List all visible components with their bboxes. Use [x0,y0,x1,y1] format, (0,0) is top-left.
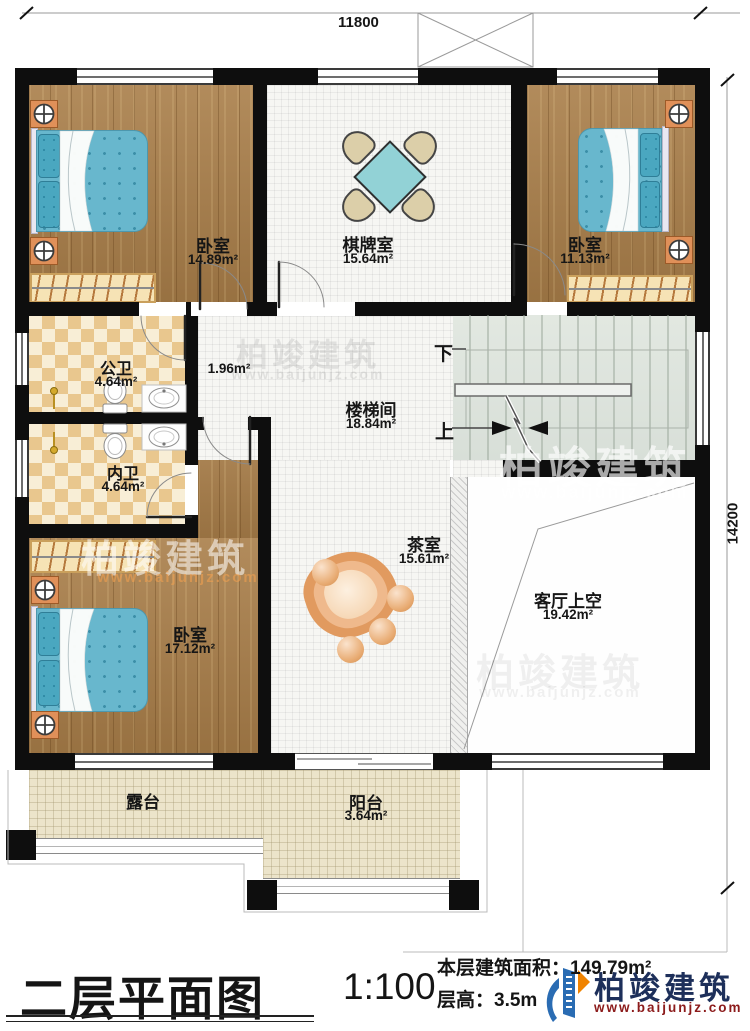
area-living-void: 19.42m² [543,607,593,622]
floor-area-label: 本层建筑面积： [437,958,570,979]
stair-down-label: 下 [434,339,453,366]
area-bedroom-bottom-left: 17.12m² [165,641,215,656]
stair-up-label: 上 [435,417,454,444]
towel-rail-knob [51,447,58,454]
linework-overlay [0,0,750,1031]
dimension-width: 11800 [338,14,379,31]
stair-railing [455,384,631,396]
area-game-room: 15.64m² [343,251,393,266]
area-ensuite-bath: 4.64m² [102,479,145,494]
eave-outline [403,770,727,952]
door-swing-game-room [279,262,324,307]
bed3-sheet [60,609,94,711]
toilet-tank [103,404,127,413]
sink-faucet [162,389,165,392]
door-swing-public-bath [141,316,185,360]
watermark-bedroom-url: www.baijunjz.com [97,569,258,586]
floor-height-label: 层高： [437,990,494,1011]
floor-height-value: 3.5m [494,990,537,1011]
door-swing-vestibule [203,417,250,464]
door-swing-ensuite-bath [147,473,191,517]
area-hall-nook: 1.96m² [208,361,251,376]
door-swing-bedroom1 [200,263,247,309]
area-public-bath: 4.64m² [95,374,138,389]
ensuite-bath-fixtures [51,424,187,459]
title-underline [6,1015,314,1022]
brand-url: www.baijunjz.com [594,1000,743,1015]
sliding-door-leaves [297,759,431,764]
label-terrace: 露台 [126,788,160,813]
bed1-sheet [60,131,94,231]
dimension-height: 14200 [724,503,741,545]
door-swing-bedroom2 [514,244,565,295]
bed2-sheet [604,129,638,231]
watermark-stairs-url: www.baijunjz.com [501,482,688,503]
toilet-tank [103,424,127,433]
towel-rail-knob [51,388,58,395]
floorplan-page: 柏竣建筑 www.baijunjz.com 柏竣建筑 www.baijunjz.… [0,0,750,1031]
plan-scale: 1:100 [343,966,436,1008]
terrace-outline [8,770,487,912]
area-tea-room: 15.61m² [399,551,449,566]
area-balcony: 3.64m² [345,808,388,823]
watermark-void-url: www.baijunjz.com [479,684,640,701]
area-stair-hall: 18.84m² [346,416,396,431]
watermark-hall-url: www.baijunjz.com [232,366,385,382]
sink-faucet [162,442,165,445]
roof-gable-icon [418,13,533,67]
area-bedroom-top-left: 14.89m² [188,252,238,267]
area-bedroom-top-right: 11.13m² [560,251,610,266]
logo-swoosh [547,978,559,1022]
floor-height-line: 层高：3.5m [437,985,537,1012]
